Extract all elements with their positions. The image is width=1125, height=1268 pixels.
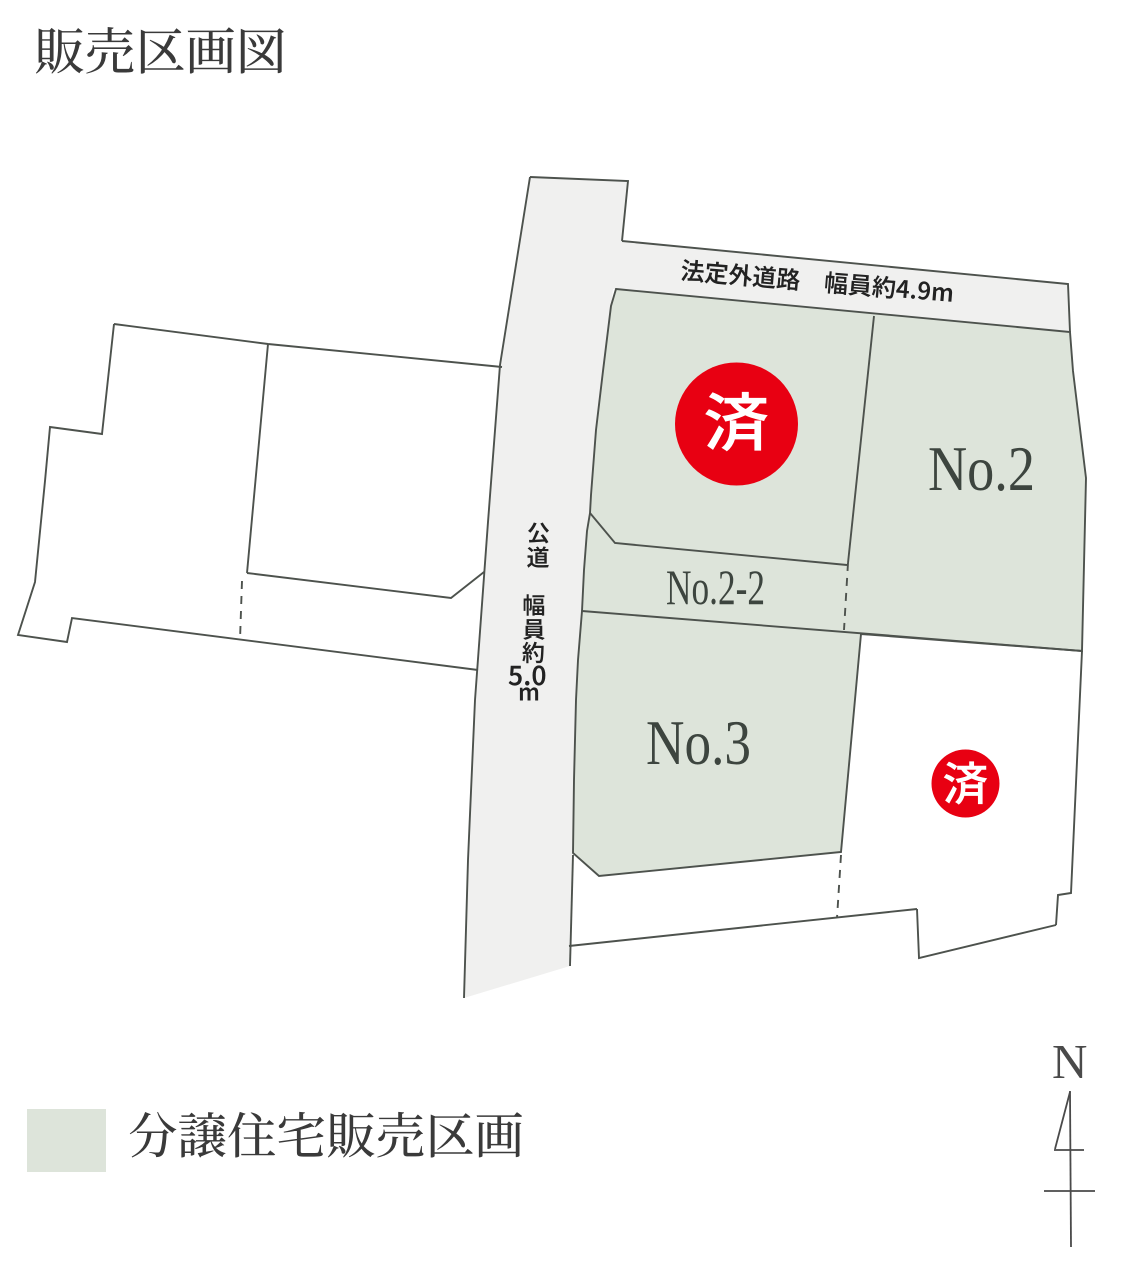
svg-text:N: N xyxy=(1052,1034,1087,1089)
svg-text:No.2-2: No.2-2 xyxy=(666,559,765,615)
svg-text:No.2: No.2 xyxy=(928,433,1035,504)
svg-text:No.3: No.3 xyxy=(646,707,751,778)
